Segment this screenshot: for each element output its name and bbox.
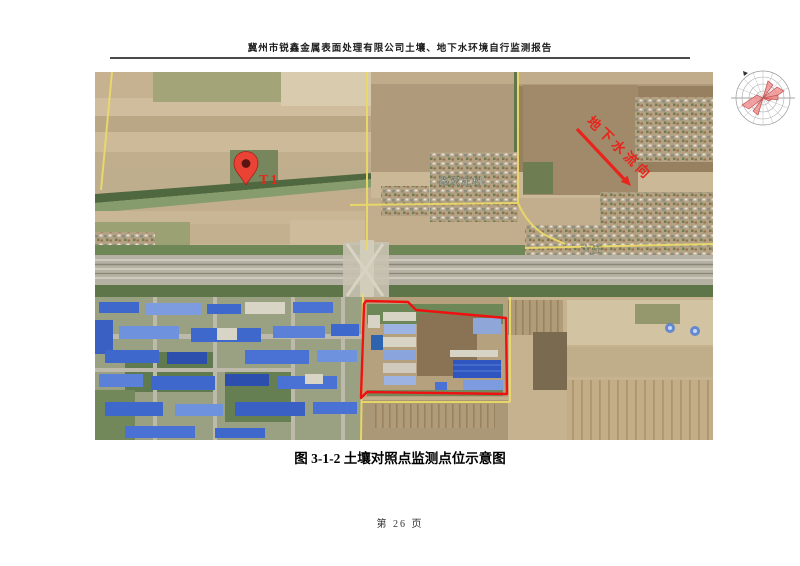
header-rule bbox=[110, 57, 690, 59]
header-title: 冀州市锐鑫金属表面处理有限公司土壤、地下水环境自行监测报告 bbox=[0, 40, 800, 54]
page-number: 第 26 页 bbox=[0, 515, 800, 530]
figure-caption: 图 3-1-2 土壤对照点监测点位示意图 bbox=[0, 447, 800, 467]
village-label: 大庄 bbox=[581, 243, 603, 256]
marker-label: T1 bbox=[259, 173, 279, 188]
village-label: 路家庄村 bbox=[439, 175, 483, 188]
industrial-zone bbox=[95, 297, 362, 440]
satellite-map: 路家庄村 大庄 地下水流向 T1 bbox=[95, 72, 713, 440]
report-page: 冀州市锐鑫金属表面处理有限公司土壤、地下水环境自行监测报告 bbox=[0, 0, 800, 566]
north-tick bbox=[743, 71, 748, 76]
wind-rose bbox=[731, 66, 795, 130]
